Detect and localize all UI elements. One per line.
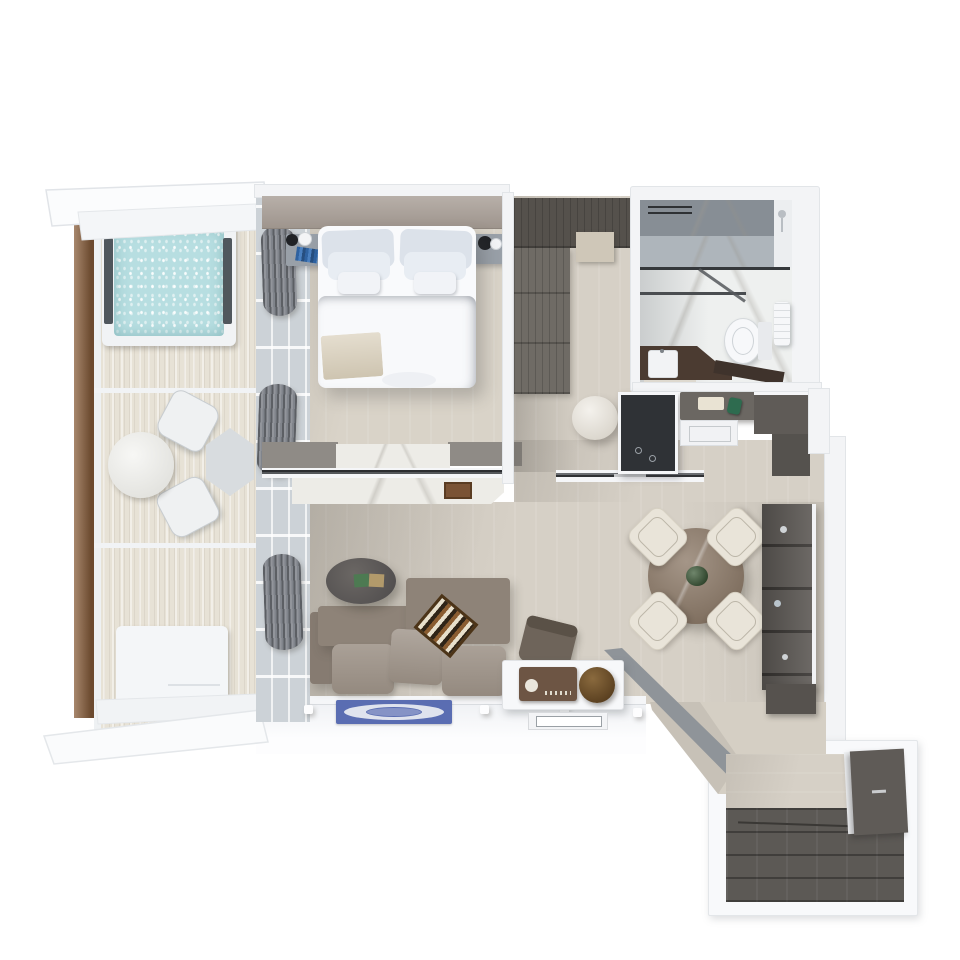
entrance-sideboard — [850, 749, 908, 836]
sliding-door-handle — [614, 474, 646, 477]
shower-towel-bar — [648, 206, 692, 214]
toilet-tank — [758, 322, 772, 360]
hall-basin-unit — [680, 420, 738, 446]
green-glass-decor — [726, 397, 742, 415]
balcony-round-table — [108, 432, 174, 498]
vanity-sink — [648, 350, 678, 378]
shelf-base-cabinet — [766, 684, 816, 714]
shower-mid-band — [640, 236, 792, 268]
marble-tv-console — [292, 478, 504, 504]
daybed-notch — [168, 684, 220, 700]
shelf-decor-3 — [782, 654, 788, 660]
floor-tray — [528, 712, 608, 730]
bed-accent-pillow-right — [414, 272, 456, 294]
shower-hose-icon — [781, 218, 783, 232]
hook-icon-1 — [635, 447, 642, 454]
headboard-wall — [262, 196, 508, 229]
decor-box-green — [354, 573, 370, 587]
radio-knob-icon — [525, 679, 538, 692]
books-stack — [295, 247, 319, 264]
radio-slots-icon — [545, 691, 571, 695]
bedside-lamp-left — [286, 234, 298, 246]
console-decor-tray — [698, 397, 724, 410]
area-rug — [336, 700, 452, 724]
shower-fixture-column — [774, 200, 792, 268]
decor-bowl — [579, 667, 615, 703]
bedroom-wall-stub-left — [262, 442, 338, 468]
balcony-daybed — [116, 626, 228, 704]
jacuzzi-side-bar-right — [223, 238, 232, 324]
toilet-bowl — [724, 318, 762, 364]
shower-head-icon — [778, 210, 786, 218]
closet-bench-shelf — [576, 232, 614, 262]
walkway-post-1 — [304, 705, 313, 714]
decor-box-tan — [369, 574, 385, 588]
king-bed — [318, 226, 476, 388]
corner-cabinet-leg — [772, 434, 810, 476]
console-wood-tray — [444, 482, 472, 499]
walkway-post-4 — [633, 708, 642, 717]
bathroom-south-wall — [632, 382, 822, 392]
floorplan-canvas — [0, 0, 960, 960]
mirror-panel — [618, 392, 678, 474]
shower-dark-band — [640, 200, 792, 236]
plant-centerpiece — [686, 566, 708, 586]
bed-foot-crumple — [382, 372, 436, 388]
walkway-post-2 — [480, 705, 489, 714]
closet-round-pouf — [572, 396, 618, 440]
jacuzzi-water — [114, 228, 224, 336]
bedroom-closet-divider-wall — [502, 192, 514, 484]
chair-seat-line — [635, 514, 682, 561]
shower-glass-line — [640, 267, 790, 270]
toilet-seat-line — [732, 327, 754, 355]
basin-inner-line — [689, 426, 731, 442]
shelf-decor-2 — [774, 600, 781, 607]
jacuzzi-side-bar-left — [104, 238, 113, 324]
balcony-deck-frame — [94, 198, 101, 740]
desk — [502, 660, 624, 710]
wardrobe — [514, 248, 570, 394]
sink-faucet-icon — [660, 349, 664, 353]
hall-right-wall — [808, 388, 830, 454]
coffee-table — [326, 558, 396, 604]
bed-accent-pillow-left — [338, 272, 380, 294]
bedroom-marble-strip — [336, 444, 450, 468]
hall-console-cabinet — [680, 392, 758, 420]
shelf-decor-1 — [780, 526, 787, 533]
rug-medallion — [366, 707, 422, 717]
towel-on-wall — [774, 302, 790, 346]
living-right-wall — [824, 436, 846, 758]
bedroom-glass-partition-track — [262, 468, 514, 478]
curtain-living — [262, 553, 303, 650]
closet-top-cabinet — [514, 198, 636, 248]
floor-tray-inner — [536, 716, 602, 727]
bookshelf — [762, 504, 816, 690]
balcony-cross-rail-2 — [94, 543, 258, 548]
chair-seat-line — [713, 598, 760, 645]
sofa-seat-left — [332, 644, 394, 694]
sideboard-handle — [872, 790, 886, 794]
lamp-shade-right — [490, 238, 502, 250]
lamp-shade-left — [298, 232, 312, 246]
hook-icon-2 — [649, 455, 656, 462]
bed-throw-blanket — [321, 332, 384, 380]
balcony-rail-wood — [74, 192, 94, 718]
corner-cabinet-top — [754, 392, 810, 434]
radio — [519, 667, 577, 701]
